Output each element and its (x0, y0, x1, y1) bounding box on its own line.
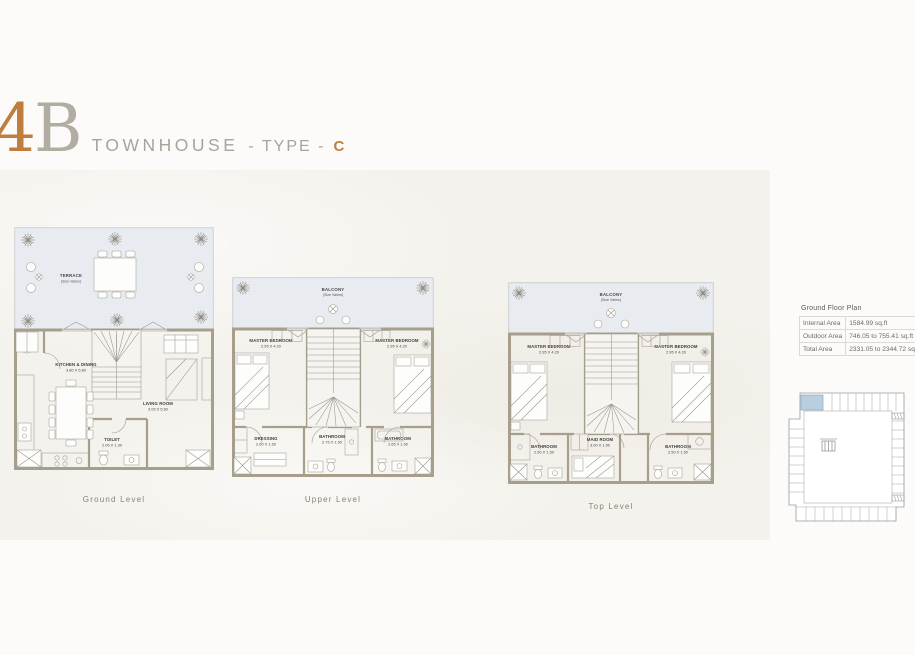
dressing-label: DRESSING (254, 436, 278, 441)
page-title: 4 B TOWNHOUSE - TYPE - C (0, 96, 345, 166)
top-level-plan: BALCONY (Size Varies) (508, 282, 714, 489)
stairs (307, 329, 360, 427)
washer-box-icon (17, 450, 41, 467)
wc-icon (378, 459, 386, 472)
balcony: BALCONY (Size Varies) (509, 283, 713, 334)
bathroom-dims: 2.50 X 1.50 (668, 450, 689, 455)
key-plan (784, 387, 914, 532)
kitchen-dims: 3.80 X 5.80 (66, 368, 87, 373)
courtyard (804, 411, 892, 503)
area-label: Outdoor Area (800, 330, 846, 343)
bathroom-label: BATHROOM (531, 444, 557, 449)
master-bedroom-left: MASTER BEDROOM 2.95 X 4.20 (235, 331, 302, 420)
area-value: 2331.05 to 2344.72 sq.ft (846, 343, 915, 356)
bathroom-dims: 2.65 X 1.50 (388, 442, 409, 447)
sofa-icon (164, 335, 198, 353)
kitchen-label: KITCHEN & DINING (55, 362, 97, 367)
basin-icon (124, 455, 139, 465)
area-label: Internal Area (800, 317, 846, 330)
bathroom-label: BATHROOM (319, 434, 345, 439)
title-separator: - TYPE - (248, 138, 325, 156)
bathroom-dims: 2.50 X 1.50 (534, 450, 555, 455)
sink-icon (392, 461, 407, 471)
nightstand-icon (511, 422, 520, 430)
master-bedroom-right: MASTER BEDROOM 2.95 X 4.20 (642, 336, 711, 423)
bedroom-dims: 2.95 X 4.20 (666, 350, 687, 355)
master-bedroom-right: MASTER BEDROOM 2.95 X 4.20 (364, 331, 431, 414)
bathroom-right: BATHROOM 2.50 X 1.50 (654, 434, 711, 480)
stairs (92, 330, 141, 399)
living-room-dims: 3.05 X 5.60 (148, 407, 169, 412)
caption-upper-level: Upper Level (232, 495, 434, 504)
bed-icon (235, 353, 269, 409)
area-summary: Ground Floor Plan Internal Area 1584.99 … (799, 305, 907, 356)
title-number: 4 (0, 96, 34, 162)
toilet-label: TOILET (104, 437, 120, 442)
toilet-dims: 2.05 X 1.30 (102, 443, 123, 448)
storage-box-icon (234, 457, 251, 474)
wc-icon (99, 451, 108, 465)
tv-cabinet-icon (202, 358, 212, 400)
bed-icon (394, 355, 431, 413)
stairs (585, 334, 638, 434)
maid-room-dims: 3.00 X 1.50 (590, 443, 611, 448)
terrace: TERRACE (Size Varies) (15, 228, 213, 330)
bathroom-label: BATHROOM (385, 436, 411, 441)
terrace-label: TERRACE (60, 273, 82, 278)
bedroom-dims: 2.95 X 4.20 (387, 344, 408, 349)
sink-icon (76, 458, 82, 464)
bathroom-dims: 2.75 X 1.50 (322, 440, 343, 445)
ground-level-plan: TERRACE (Size Varies) (14, 227, 214, 475)
shower-icon (510, 434, 530, 460)
balcony: BALCONY (Size Varies) (233, 278, 433, 329)
area-value: 1584.99 sq.ft (846, 317, 915, 330)
bed-icon (511, 362, 547, 420)
area-table-title: Ground Floor Plan (801, 305, 907, 312)
living-room: LIVING ROOM 3.05 X 5.60 (143, 335, 211, 412)
area-table: Internal Area 1584.99 sq.ft Outdoor Area… (799, 316, 915, 356)
master-bedroom-left: MASTER BEDROOM 2.95 X 4.20 (511, 336, 580, 431)
table-row: Internal Area 1584.99 sq.ft (800, 317, 915, 330)
balcony-label: BALCONY (322, 287, 345, 292)
sink-icon (668, 468, 682, 478)
upper-level-plan: BALCONY (Size Varies) (232, 277, 434, 482)
caption-ground-level: Ground Level (14, 495, 214, 504)
highlighted-unit (801, 395, 823, 410)
floorplan-panel: TERRACE (Size Varies) (0, 170, 770, 540)
storage-box-icon (694, 464, 711, 480)
bathroom-center: BATHROOM 2.75 X 1.50 (308, 429, 358, 472)
dressing-dims: 2.60 X 1.50 (256, 442, 277, 447)
caption-top-level: Top Level (508, 502, 714, 511)
area-label: Total Area (800, 343, 846, 356)
nightstand-icon (235, 411, 244, 419)
wc-icon (654, 466, 662, 479)
bedroom-dims: 2.95 X 4.20 (261, 344, 282, 349)
terrace-note: (Size Varies) (61, 280, 81, 284)
toilet-room: TOILET 2.05 X 1.30 (99, 437, 139, 465)
shower-icon (345, 429, 358, 455)
balcony-label: BALCONY (600, 292, 623, 297)
kitchen-dining: KITCHEN & DINING 3.80 X 5.80 (16, 332, 97, 468)
storage-box-icon (510, 464, 527, 480)
title-word: TOWNHOUSE (92, 135, 239, 156)
bathroom-right: BATHROOM 2.65 X 1.50 (375, 429, 431, 474)
table-row: Outdoor Area 746.05 to 755.41 sq.ft (800, 330, 915, 343)
dining-table-outdoor-icon (94, 251, 136, 298)
bathroom-left: BATHROOM 2.50 X 1.50 (510, 434, 562, 480)
title-type-letter: C (333, 138, 345, 155)
wc-icon (327, 459, 335, 472)
maid-room: MAID ROOM 3.00 X 1.50 (571, 434, 614, 478)
sink-icon (308, 461, 323, 472)
dressing-room: DRESSING 2.60 X 1.50 (234, 427, 286, 474)
stove-icon (55, 456, 67, 466)
bedroom-dims: 2.95 X 4.20 (539, 350, 560, 355)
table-row: Total Area 2331.05 to 2344.72 sq.ft (800, 343, 915, 356)
area-value: 746.05 to 755.41 sq.ft (846, 330, 915, 343)
maid-room-label: MAID ROOM (587, 437, 614, 442)
title-letter: B (34, 96, 83, 162)
dining-table-icon (49, 380, 93, 446)
maid-bed-icon (572, 456, 614, 478)
bed-icon (672, 362, 711, 422)
bathroom-label: BATHROOM (665, 444, 691, 449)
wc-icon (534, 466, 542, 479)
sink-icon (548, 468, 562, 478)
balcony-note: (Size Varies) (323, 293, 343, 297)
vanity-icon (688, 434, 711, 449)
living-room-label: LIVING ROOM (143, 401, 173, 406)
storage-box-icon (186, 450, 210, 467)
bedroom-label: MASTER BEDROOM (249, 338, 292, 343)
rug-icon (166, 359, 197, 400)
storage-box-icon (415, 458, 431, 474)
balcony-note: (Size Varies) (601, 298, 621, 302)
